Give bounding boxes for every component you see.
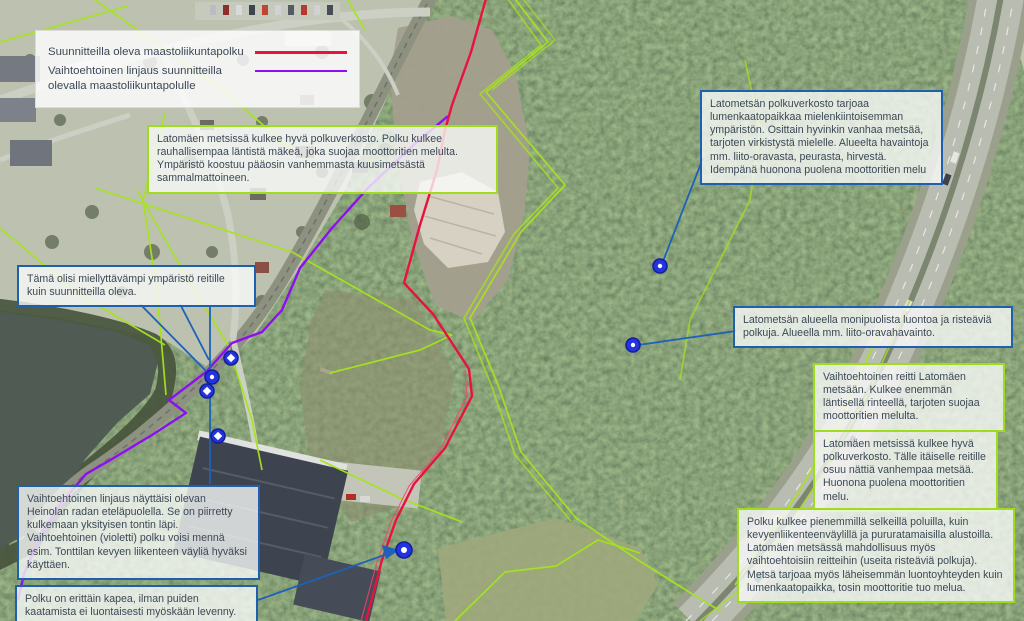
legend-label: Suunnitteilla oleva maastoliikuntapolku [48, 45, 255, 60]
callout-west-forest[interactable]: Latomäen metsissä kulkee hyvä polkuverko… [147, 125, 498, 194]
callout-lato-network[interactable]: Latometsän polkuverkosto tarjoaa lumenka… [700, 90, 943, 185]
callout-alt-route[interactable]: Vaihtoehtoinen reitti Latomäen metsään. … [813, 363, 1005, 432]
map-marker[interactable] [224, 351, 238, 365]
planned-route-swatch [255, 51, 347, 54]
legend-label: Vaihtoehtoinen linjaus suunnitteilla ole… [48, 64, 255, 94]
legend-item-planned-route: Suunnitteilla oleva maastoliikuntapolku [48, 45, 347, 60]
callout-nicer-environment[interactable]: Tämä olisi miellyttävämpi ympäristö reit… [17, 265, 256, 307]
map-feedback-view: Suunnitteilla oleva maastoliikuntapolku … [0, 0, 1024, 621]
callout-east-route[interactable]: Latomäen metsissä kulkee hyvä polkuverko… [813, 430, 998, 512]
map-marker[interactable] [626, 338, 640, 352]
map-marker[interactable] [653, 259, 667, 273]
callout-narrow-path[interactable]: Polku on erittäin kapea, ilman puiden ka… [15, 585, 258, 621]
callout-private-lot[interactable]: Vaihtoehtoinen linjaus näyttäisi olevan … [17, 485, 260, 580]
callout-small-paths[interactable]: Polku kulkee pienemmillä selkeillä polui… [737, 508, 1015, 603]
legend-item-alternative-route: Vaihtoehtoinen linjaus suunnitteilla ole… [48, 64, 347, 94]
map-marker[interactable] [200, 384, 214, 398]
map-marker[interactable] [205, 370, 219, 384]
map-legend: Suunnitteilla oleva maastoliikuntapolku … [35, 30, 360, 108]
map-marker[interactable] [211, 429, 225, 443]
alternative-route-swatch [255, 70, 347, 73]
map-marker[interactable] [396, 542, 412, 558]
callout-diverse-nature[interactable]: Latometsän alueella monipuolista luontoa… [733, 306, 1013, 348]
